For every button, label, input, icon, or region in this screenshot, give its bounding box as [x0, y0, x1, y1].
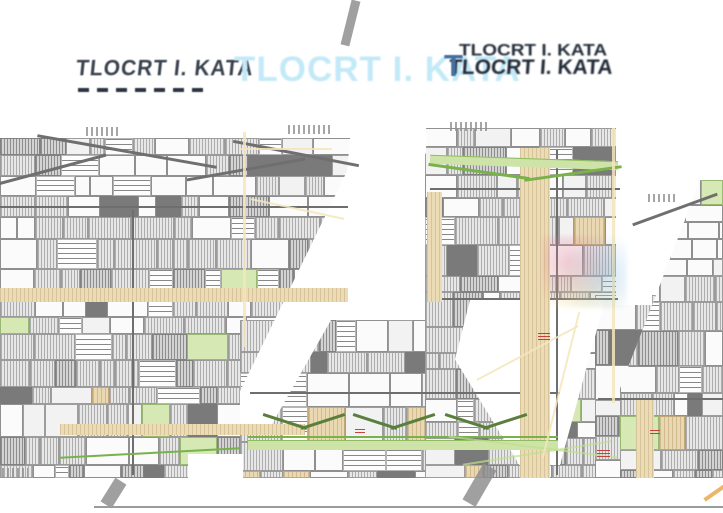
plan-cell: [719, 222, 723, 239]
plan-cell: [184, 317, 226, 334]
plan-cell: [679, 366, 702, 393]
plan-cell: [660, 276, 685, 302]
plan-cell: [313, 138, 352, 155]
plan-cell: [35, 217, 63, 239]
plan-cell: [279, 176, 305, 196]
roof-edge-green: [248, 436, 558, 438]
plan-cell: [688, 222, 719, 239]
plan-cell: [33, 465, 55, 478]
plan-cell: [698, 450, 723, 470]
floorplan: [0, 0, 723, 513]
plan-cell: [705, 331, 723, 366]
plan-cell: [349, 373, 390, 407]
plan-cell: [477, 245, 509, 276]
plan-cell: [213, 176, 256, 196]
corridor-band: [0, 288, 348, 302]
site-line-yellow: [240, 148, 332, 150]
plan-cell: [75, 176, 90, 196]
plan-cell: [17, 217, 35, 239]
plan-cell: [702, 393, 723, 416]
plan-cell: [90, 176, 113, 196]
site-line-orange: [703, 482, 723, 501]
plan-cell: [55, 465, 69, 478]
plan-cell: [660, 259, 687, 276]
plan-cell: [151, 176, 186, 196]
plan-cell: [144, 465, 164, 478]
plan-cell: [685, 276, 715, 302]
plan-cell: [457, 175, 497, 198]
plan-cell: [455, 217, 498, 245]
plan-cell: [586, 175, 612, 198]
plan-cell: [75, 334, 112, 360]
plan-cell: [443, 198, 479, 217]
plan-cell: [497, 175, 517, 198]
plan-cell: [36, 176, 75, 196]
site-line-yellow: [243, 132, 246, 347]
plan-wall: [598, 398, 723, 400]
plan-cell: [688, 393, 702, 416]
plan-cell: [113, 176, 151, 196]
plan-cell: [112, 334, 126, 360]
plan-cell: [51, 387, 92, 404]
plan-cell: [661, 450, 698, 470]
plan-cell: [652, 393, 674, 416]
plan-cell: [367, 352, 405, 373]
plan-cell: [716, 302, 723, 331]
gap-bottom-left: [188, 454, 243, 478]
plan-cell: [336, 320, 356, 352]
plan-wall: [556, 150, 558, 475]
plan-cell: [100, 360, 115, 387]
plan-cell: [673, 470, 695, 478]
dimension-text: [2, 468, 28, 478]
plan-cell: [425, 353, 439, 369]
plan-cell: [511, 128, 540, 147]
plan-cell: [540, 128, 565, 147]
plan-cell: [638, 331, 678, 366]
plan-cell: [152, 334, 187, 360]
plan-cell: [23, 404, 45, 437]
red-dimension-mark: [355, 427, 365, 433]
plan-cell: [656, 366, 679, 393]
plan-cell: [176, 360, 193, 387]
plan-cell: [55, 360, 76, 387]
plan-cell: [425, 465, 465, 478]
corridor-band: [60, 424, 305, 435]
plan-cell: [92, 387, 109, 404]
plan-cell: [310, 471, 348, 478]
plan-cell: [674, 393, 688, 416]
plan-cell: [173, 239, 188, 269]
plan-cell: [240, 471, 260, 478]
plan-cell: [660, 302, 693, 331]
plan-cell: [479, 198, 503, 217]
plan-cell: [713, 259, 723, 276]
plan-cell: [0, 404, 23, 437]
plan-cell: [82, 317, 110, 334]
plan-cell: [157, 387, 200, 404]
plan-cell: [692, 239, 717, 259]
plan-cell: [567, 198, 604, 217]
plan-cell: [678, 331, 705, 366]
plan-cell: [187, 334, 228, 360]
plan-cell: [97, 239, 114, 269]
plan-cell: [460, 276, 498, 292]
plan-cell: [192, 217, 231, 239]
plan-cell: [37, 239, 57, 269]
plan-cell: [717, 239, 723, 259]
plan-cell: [126, 334, 152, 360]
plan-wall: [132, 210, 134, 475]
plan-cell: [0, 387, 32, 404]
dimension-text: [648, 194, 678, 202]
plan-cell: [307, 373, 349, 407]
artifact-diagonal-bottom: [101, 478, 127, 509]
plan-cell: [283, 471, 310, 478]
plan-cell: [115, 360, 139, 387]
plan-cell: [447, 245, 477, 276]
plan-cell: [256, 176, 279, 196]
plan-cell: [279, 217, 320, 239]
plan-cell: [144, 317, 184, 334]
watermark: [542, 236, 627, 308]
plan-cell: [0, 317, 29, 334]
red-dimension-mark: [538, 333, 550, 340]
plan-cell: [620, 470, 637, 478]
plan-cell: [99, 155, 135, 176]
plan-cell: [0, 138, 40, 155]
plan-cell: [110, 317, 144, 334]
plan-cell: [251, 239, 289, 269]
plan-cell: [390, 373, 422, 407]
plan-cell: [34, 334, 75, 360]
plan-cell: [377, 471, 415, 478]
corridor-band: [636, 400, 654, 478]
red-dimension-mark: [597, 449, 610, 457]
plan-cell: [188, 239, 216, 269]
plan-cell: [139, 360, 176, 387]
dimension-text: [288, 125, 330, 134]
plan-cell: [155, 138, 189, 155]
plan-cell: [109, 387, 129, 404]
plan-cell: [702, 366, 723, 393]
plan-cell: [701, 180, 723, 205]
plan-cell: [712, 470, 723, 478]
plan-cell: [0, 239, 37, 269]
dimension-text: [450, 122, 488, 131]
red-dimension-mark: [650, 428, 660, 434]
plan-cell: [388, 320, 413, 352]
plan-cell: [69, 465, 84, 478]
corridor-band: [520, 148, 550, 478]
plan-cell: [76, 360, 100, 387]
plan-cell: [59, 437, 86, 465]
plan-cell: [687, 259, 713, 276]
plan-cell: [131, 217, 174, 239]
plan-cell: [32, 387, 51, 404]
plan-cell: [685, 205, 723, 222]
plan-cell: [30, 360, 55, 387]
plan-cell: [695, 470, 712, 478]
plan-cell: [84, 465, 121, 478]
plan-cell: [189, 138, 225, 155]
plan-cell: [563, 175, 586, 198]
plan-cell: [305, 176, 324, 196]
plan-cell: [0, 217, 17, 239]
plan-cell: [503, 198, 521, 217]
plan-cell: [356, 320, 388, 352]
plan-cell: [200, 387, 217, 404]
plan-cell: [715, 276, 723, 302]
plan-cell: [670, 239, 692, 259]
plan-cell: [595, 330, 609, 365]
plan-cell: [0, 437, 25, 465]
bottom-rule-line: [94, 506, 723, 508]
plan-cell: [255, 217, 279, 239]
dimension-text: [86, 127, 120, 136]
page: TLOCRT I. KATA TLOCRT I. KATA TLOCRT I. …: [0, 0, 723, 513]
plan-cell: [565, 128, 591, 147]
plan-cell: [659, 416, 685, 450]
artifact-diagonal-top: [341, 0, 361, 46]
plan-cell: [348, 471, 377, 478]
plan-cell: [25, 437, 40, 465]
plan-cell: [86, 437, 129, 465]
plan-cell: [193, 360, 227, 387]
plan-cell: [57, 239, 97, 269]
plan-wall: [250, 392, 560, 394]
plan-cell: [63, 217, 88, 239]
plan-cell: [260, 471, 283, 478]
plan-cell: [29, 317, 59, 334]
plan-cell: [425, 369, 456, 399]
plan-cell: [311, 352, 327, 373]
plan-cell: [327, 352, 367, 373]
plan-cell: [0, 334, 34, 360]
plan-cell: [685, 416, 723, 450]
plan-cell: [157, 239, 173, 269]
plan-cell: [217, 387, 241, 404]
plan-cell: [40, 437, 59, 465]
plan-cell: [595, 416, 619, 436]
plan-cell: [0, 360, 30, 387]
plan-cell: [114, 239, 157, 269]
plan-cell: [693, 302, 716, 331]
plan-cell: [59, 317, 82, 334]
plan-cell: [88, 217, 131, 239]
plan-cell: [174, 217, 192, 239]
corridor-band: [427, 192, 442, 302]
